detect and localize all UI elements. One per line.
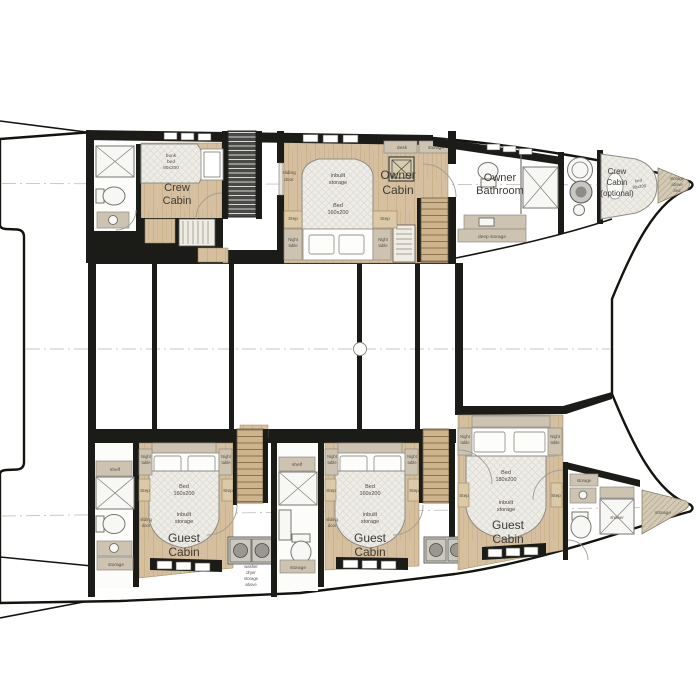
g1-storage-label: storage bbox=[108, 562, 124, 568]
g2-storage-label: storage bbox=[290, 565, 306, 571]
crew-window-2 bbox=[181, 133, 194, 140]
g2-name-label-2: Cabin bbox=[354, 545, 385, 559]
stairs-treads bbox=[237, 429, 263, 503]
wall-stairs-owner bbox=[417, 198, 421, 262]
salon-structure bbox=[88, 250, 612, 443]
g2-inbuilt-label-2: storage bbox=[361, 519, 379, 525]
crew-bow-label-1: Crew bbox=[608, 167, 627, 176]
guest-cabin-aft-2: shelf storage Night table Night table St… bbox=[271, 429, 423, 597]
g3-headboard bbox=[472, 416, 550, 427]
owner-step-label-right: Step bbox=[380, 216, 390, 222]
g3-bed-label-1: Bed bbox=[501, 470, 511, 476]
bow-storage-label-2: above bbox=[671, 182, 683, 187]
g2-ntr-label-1: Night bbox=[407, 454, 418, 459]
g1-ntr-label-1: Night bbox=[221, 454, 232, 459]
crew-bow-label-3: (optional) bbox=[600, 189, 634, 198]
washer-door bbox=[234, 544, 248, 558]
g2-bed-label-2: 160x200 bbox=[359, 491, 380, 497]
owner-window-2 bbox=[323, 135, 338, 143]
g2-step-label-left: Step bbox=[326, 488, 336, 494]
stairs-wall-left bbox=[419, 429, 423, 503]
owner-bed-label-1: Bed bbox=[333, 203, 343, 209]
ob-sink bbox=[479, 218, 494, 226]
g2-ntl-label-1: Night bbox=[327, 454, 338, 459]
g2-window-2 bbox=[362, 561, 377, 569]
g3-ntl-label-2: table bbox=[460, 440, 470, 445]
g3-ntl-label-1: Night bbox=[460, 434, 471, 439]
crew-bunk-label-3: 80x200 bbox=[163, 165, 179, 171]
guest-bathroom-2: shelf storage bbox=[277, 443, 318, 591]
g3b-counter bbox=[600, 487, 634, 498]
fwd-cabin-top-wall bbox=[455, 392, 612, 415]
wall-owner-left-b bbox=[277, 195, 284, 263]
owner-window-1 bbox=[303, 135, 318, 143]
owner-pillow-2 bbox=[339, 235, 364, 254]
wd-label-4: above bbox=[245, 582, 257, 587]
g1-step-label-right: Step bbox=[223, 488, 233, 494]
bow-storage-label-1: storage bbox=[670, 176, 685, 181]
g1-step-label-left: Step bbox=[140, 488, 150, 494]
owner-step-label-left: Step bbox=[288, 216, 298, 222]
owner-bathroom-label-2: Bathroom bbox=[476, 185, 524, 197]
g2-inbuilt-label-1: inbuilt bbox=[363, 512, 378, 518]
crew-wardrobe bbox=[179, 219, 215, 246]
owner-window-3 bbox=[343, 135, 358, 143]
guest-bathroom-fwd: storage shower storage bbox=[563, 462, 689, 560]
g3-step-label-left: Step bbox=[459, 493, 469, 499]
toilet-bowl bbox=[103, 187, 125, 205]
stairs-wall-right bbox=[263, 429, 268, 503]
desk-label: desk bbox=[397, 145, 408, 151]
ob-window-3 bbox=[519, 149, 532, 155]
g1-shelf-label: shelf bbox=[110, 467, 121, 473]
stairs-treads bbox=[423, 429, 449, 503]
sliding-door-label-1: sliding bbox=[282, 170, 296, 176]
crew-bow-bed-label-1: bed bbox=[635, 177, 643, 183]
g2-ntr-label-2: table bbox=[407, 460, 417, 465]
owner-cabin-label-1: Owner bbox=[380, 168, 415, 182]
wd-label-1: washer bbox=[244, 564, 258, 569]
g2-headboard bbox=[338, 443, 402, 453]
g1-toilet-bowl bbox=[103, 515, 125, 534]
g1-ntl-label-2: table bbox=[141, 460, 151, 465]
salon-mullion-2 bbox=[229, 263, 234, 429]
wall-g3-bath-left bbox=[563, 462, 568, 560]
bow-storage-stbd-label: storage bbox=[655, 510, 671, 516]
g2-name-label-1: Guest bbox=[354, 531, 387, 545]
wall-crew-bath-divider bbox=[136, 144, 141, 220]
crew-cabin-label-1: Crew bbox=[164, 182, 190, 194]
ob-window-2 bbox=[503, 146, 516, 152]
g2-window-3 bbox=[381, 561, 396, 569]
crew-bow-label-2: Cabin bbox=[607, 178, 628, 187]
guest-cabin-fwd: Night table Night table Step Step Bed 18… bbox=[458, 415, 563, 570]
floor-plan-page: bunk bed 80x200 Crew Cabin sliding bbox=[0, 0, 700, 700]
owner-pillow-1 bbox=[309, 235, 334, 254]
g1-sliding-label-2: door bbox=[142, 523, 151, 528]
sink bbox=[109, 216, 118, 225]
galley-fixture-1 bbox=[568, 158, 593, 183]
crew-cabin-bow: Crew Cabin (optional) bed 80x200 storage… bbox=[600, 154, 689, 219]
g1-sliding-label-1: sliding bbox=[140, 517, 153, 522]
ob-vanity bbox=[464, 215, 526, 229]
g1-bed-label-2: 160x200 bbox=[173, 491, 194, 497]
crew-cabinet bbox=[145, 219, 175, 243]
g3-ntr-label-1: Night bbox=[550, 434, 561, 439]
ob-window-1 bbox=[487, 144, 500, 150]
crew-window-3 bbox=[198, 134, 211, 141]
galley-sink bbox=[574, 205, 585, 216]
sheer-line-top bbox=[0, 121, 86, 132]
wall-g2-bath-left bbox=[271, 429, 277, 597]
owner-wardrobe bbox=[393, 225, 415, 262]
g3b-toilet-bowl bbox=[571, 516, 591, 538]
g2-cabinet bbox=[279, 510, 291, 540]
wall-owner-left-a bbox=[277, 131, 284, 163]
crew-bathroom-port bbox=[94, 143, 136, 231]
crew-bunk-pillow bbox=[204, 152, 220, 177]
salon-mullion-4 bbox=[415, 263, 420, 429]
wd-label-2: dryer bbox=[246, 570, 256, 575]
washer-door bbox=[430, 544, 443, 557]
salon-wall-right bbox=[455, 263, 463, 408]
wall-ob-right bbox=[558, 152, 564, 234]
g1-bed-label-1: Bed bbox=[179, 484, 189, 490]
crew-galley-fwd bbox=[568, 150, 604, 224]
deep-storage-label: deep storage bbox=[478, 234, 506, 240]
g3-window-1 bbox=[488, 549, 502, 557]
owner-bathroom-label-1: Owner bbox=[484, 172, 517, 184]
bow-storage-label-3: bed bbox=[674, 188, 682, 193]
floor-plan-drawing: bunk bed 80x200 Crew Cabin sliding bbox=[0, 0, 700, 700]
wd-label-3: storage bbox=[244, 576, 259, 581]
g2-sliding-label-1: sliding bbox=[326, 517, 339, 522]
crew-step bbox=[198, 248, 228, 262]
crew-cabin-label-2: Cabin bbox=[163, 195, 192, 207]
wall-g2-divider bbox=[318, 443, 324, 587]
galley-fixture-2-inner bbox=[576, 187, 587, 198]
dryer-door bbox=[255, 544, 269, 558]
wall-g1-bath-left bbox=[88, 429, 95, 597]
stairs-guest-1: washer dryer storage above bbox=[228, 429, 274, 587]
g3-step-label-right: Step bbox=[551, 493, 561, 499]
g2-bed-label-1: Bed bbox=[365, 484, 375, 490]
owner-inbuilt-label-1: inbuilt bbox=[331, 173, 346, 179]
crew-bunk-label-1: bunk bbox=[166, 153, 177, 159]
wall-corridor-left bbox=[256, 131, 262, 219]
g1-ntl-label-1: Night bbox=[141, 454, 152, 459]
stairs-wall-left bbox=[233, 429, 237, 505]
g1-ntr-label-2: table bbox=[221, 460, 231, 465]
washer-dryer-1: washer dryer storage above bbox=[228, 537, 274, 587]
stern-deck-edge bbox=[0, 557, 92, 566]
g1-name-label-1: Guest bbox=[168, 531, 201, 545]
owner-inbuilt-label-2: storage bbox=[329, 180, 347, 186]
g3-inbuilt-label-2: storage bbox=[497, 507, 515, 513]
g3b-shower-label: shower bbox=[610, 515, 624, 520]
g1-inbuilt-label-2: storage bbox=[175, 519, 193, 525]
crew-bunk-label-2: bed bbox=[167, 159, 175, 165]
g2-ntl-label-2: table bbox=[327, 460, 337, 465]
g2-sliding-label-2: door bbox=[328, 523, 337, 528]
g3-window-3 bbox=[524, 547, 538, 555]
owner-bed-label-2: 160x200 bbox=[327, 210, 348, 216]
salon-mullion-1 bbox=[152, 263, 157, 429]
owner-ntl-label-1: Night bbox=[288, 237, 299, 242]
g3-pillow-2 bbox=[514, 432, 545, 452]
g1-window-1 bbox=[157, 561, 172, 569]
g1-window-2 bbox=[176, 562, 191, 570]
salon-wall-left bbox=[88, 263, 96, 429]
owner-ntl-label-2: table bbox=[288, 243, 298, 248]
sliding-door-leaf bbox=[279, 163, 283, 195]
companionway-stairs-port bbox=[228, 131, 256, 217]
stairs-owner bbox=[421, 198, 448, 262]
g3-name-label-2: Cabin bbox=[492, 532, 523, 546]
owner-ntr-label-2: table bbox=[378, 243, 388, 248]
g3b-storage-label: storage bbox=[577, 478, 592, 483]
owner-bed-mattress bbox=[302, 159, 373, 229]
g1-name-label-2: Cabin bbox=[168, 545, 199, 559]
owner-ntr-label-1: Night bbox=[378, 237, 389, 242]
wall-crew-left bbox=[86, 131, 94, 263]
owner-cabin-label-2: Cabin bbox=[382, 183, 413, 197]
g3-ntr-label-2: table bbox=[550, 440, 560, 445]
g3b-sink bbox=[579, 491, 587, 499]
g2-window-1 bbox=[343, 560, 358, 568]
g1-window-3 bbox=[195, 563, 210, 571]
g1-inbuilt-label-1: inbuilt bbox=[177, 512, 192, 518]
g3-pillow-1 bbox=[474, 432, 505, 452]
centerline-marker bbox=[354, 343, 367, 356]
sliding-door-label-2: door bbox=[284, 177, 294, 183]
dark-zone-aft-a bbox=[93, 230, 137, 263]
guest-bathroom-1: shelf storage bbox=[95, 443, 134, 588]
g3-inbuilt-label-1: inbuilt bbox=[499, 500, 514, 506]
g3-bed-label-2: 180x200 bbox=[495, 477, 516, 483]
g1-sink bbox=[110, 544, 119, 553]
g2-step-label-right: Step bbox=[409, 488, 419, 494]
wardrobe-box bbox=[393, 225, 415, 262]
g3-window-2 bbox=[506, 548, 520, 556]
g2-shelf-label: shelf bbox=[292, 462, 303, 468]
crew-window-1 bbox=[164, 133, 177, 140]
wardrobe-box bbox=[179, 219, 215, 246]
guest-cabin-aft-1: shelf storage Night table Night table St… bbox=[88, 429, 237, 597]
g1-headboard bbox=[152, 443, 216, 453]
wall-g1-divider bbox=[133, 443, 139, 587]
g3-name-label-1: Guest bbox=[492, 518, 525, 532]
wall-owner-right-b bbox=[448, 197, 456, 263]
